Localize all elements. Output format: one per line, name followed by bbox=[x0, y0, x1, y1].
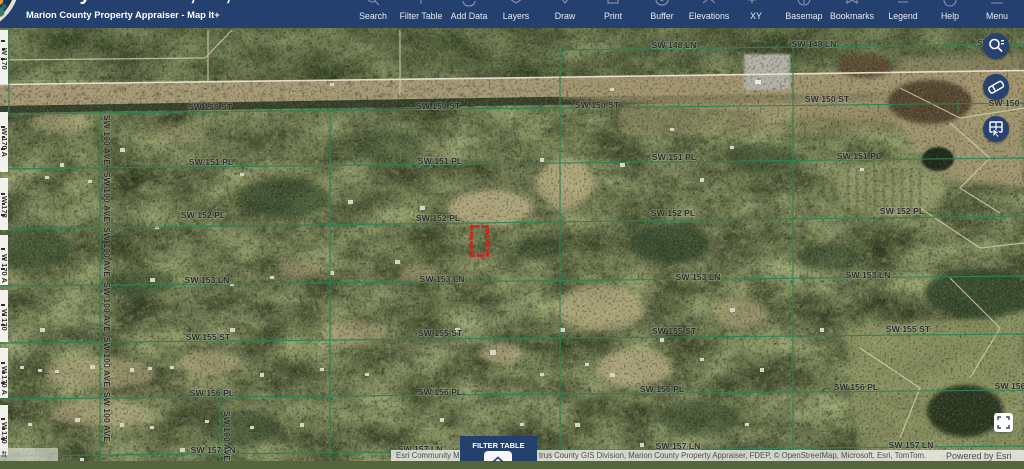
svg-text:SW 156 PL: SW 156 PL bbox=[834, 382, 879, 392]
svg-text:SW 150 ST: SW 150 ST bbox=[416, 101, 461, 111]
svg-text:SW 100 AVE: SW 100 AVE bbox=[102, 337, 112, 387]
svg-text:SW 152 PL: SW 152 PL bbox=[181, 210, 226, 220]
svg-text:SW 100 AVE: SW 100 AVE bbox=[102, 115, 112, 165]
svg-text:SW 155 ST: SW 155 ST bbox=[652, 326, 697, 336]
svg-text:SW 148 LN: SW 148 LN bbox=[792, 39, 837, 49]
svg-text:SW 153 LN: SW 153 LN bbox=[420, 274, 465, 284]
svg-text:SW 157 LN: SW 157 LN bbox=[889, 440, 934, 450]
svg-text:SW 152 PL: SW 152 PL bbox=[880, 206, 925, 216]
svg-text:SW 100 AVE: SW 100 AVE bbox=[222, 411, 232, 461]
svg-text:SW 156: SW 156 bbox=[995, 381, 1024, 391]
svg-text:SW 156 PL: SW 156 PL bbox=[640, 384, 685, 394]
svg-text:SW 156 PL: SW 156 PL bbox=[190, 388, 235, 398]
svg-text:W 170: W 170 bbox=[0, 309, 9, 331]
svg-text:SW 153 LN: SW 153 LN bbox=[676, 272, 721, 282]
svg-text:SW 153 LN: SW 153 LN bbox=[185, 275, 230, 285]
svg-text:SW 150 ST: SW 150 ST bbox=[575, 100, 620, 110]
svg-text:W 170: W 170 bbox=[0, 422, 9, 444]
svg-text:SW 152 PL: SW 152 PL bbox=[651, 208, 696, 218]
svg-text:SW 150 ST: SW 150 ST bbox=[188, 102, 233, 112]
svg-text:SW 156 PL: SW 156 PL bbox=[418, 387, 463, 397]
svg-text:W 170 A: W 170 A bbox=[0, 366, 9, 395]
svg-text:SW 100 AVE: SW 100 AVE bbox=[102, 392, 112, 442]
svg-text:SW 100 AVE: SW 100 AVE bbox=[102, 282, 112, 332]
svg-text:SW 100 AVE: SW 100 AVE bbox=[102, 172, 112, 222]
svg-text:SW 153 LN: SW 153 LN bbox=[846, 270, 891, 280]
svg-text:SW 150 ST: SW 150 ST bbox=[805, 94, 850, 104]
svg-text:SW 151 PL: SW 151 PL bbox=[837, 151, 882, 161]
svg-text:SW 100 AVE: SW 100 AVE bbox=[102, 227, 112, 277]
svg-text:SW 151 PL: SW 151 PL bbox=[652, 152, 697, 162]
svg-text:SW 148 LN: SW 148 LN bbox=[652, 40, 697, 50]
svg-text:SW 151 PL: SW 151 PL bbox=[189, 157, 234, 167]
svg-text:SW 155 ST: SW 155 ST bbox=[886, 324, 931, 334]
svg-text:SW 151 PL: SW 151 PL bbox=[418, 156, 463, 166]
svg-text:SW 152 PL: SW 152 PL bbox=[416, 213, 461, 223]
svg-text:SW 155 ST: SW 155 ST bbox=[186, 332, 231, 342]
svg-text:SW 155 ST: SW 155 ST bbox=[418, 328, 463, 338]
svg-text:W 170 A: W 170 A bbox=[0, 128, 9, 157]
